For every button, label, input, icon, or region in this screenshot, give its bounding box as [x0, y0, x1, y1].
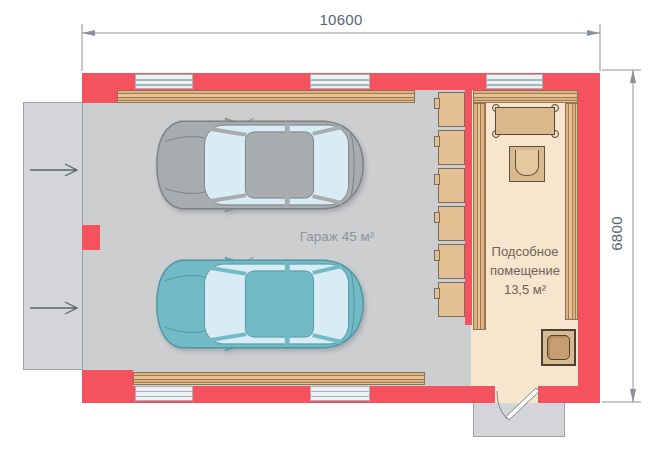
sink — [541, 329, 576, 366]
utility-label-line-2: помещение — [474, 261, 576, 280]
workbench-bottom — [133, 372, 425, 385]
utility-shelf-top — [473, 90, 578, 103]
dimension-top — [82, 24, 600, 71]
driveway — [23, 102, 83, 370]
entrance-doorway — [495, 386, 538, 403]
partition-wall — [465, 90, 472, 325]
utility-room-label: Подсобное помещение 13,5 м² — [474, 242, 576, 299]
cabinet — [438, 130, 465, 165]
utility-label-line-3: 13,5 м² — [474, 280, 576, 299]
cabinet — [438, 206, 465, 241]
window-top-1 — [135, 74, 193, 89]
window-top-2 — [310, 74, 370, 89]
dimension-right-label: 6800 — [608, 204, 627, 264]
cabinet — [438, 168, 465, 203]
utility-label-line-1: Подсобное — [474, 242, 576, 261]
dim-arrow-right — [587, 30, 600, 36]
garage-room-label: Гараж 45 м² — [277, 229, 397, 244]
chair — [509, 146, 545, 182]
entrance-porch — [473, 402, 565, 437]
table — [495, 107, 555, 135]
sink-bowl — [547, 335, 570, 360]
garage-door-pier — [82, 225, 100, 250]
dimension-top-label: 10600 — [301, 11, 381, 28]
cabinet — [438, 244, 465, 279]
window-bottom-1 — [135, 386, 193, 401]
floor-plan: Гараж 45 м² Подсобное помещение 13,5 м² … — [0, 0, 660, 460]
car-gray — [150, 115, 370, 215]
wall-corner-bottom-left — [82, 370, 133, 403]
chair-seat — [515, 150, 539, 176]
workbench-top — [117, 90, 415, 103]
dim-arrow-down — [630, 389, 636, 402]
wall-right — [578, 73, 600, 403]
window-utility — [486, 74, 543, 89]
cabinet — [438, 282, 465, 317]
wall-corner-top-left — [82, 73, 117, 103]
cabinet — [438, 92, 465, 127]
dim-arrow-left — [82, 30, 95, 36]
dim-arrow-up — [630, 70, 636, 83]
car-teal — [150, 254, 370, 354]
window-bottom-2 — [310, 386, 370, 401]
